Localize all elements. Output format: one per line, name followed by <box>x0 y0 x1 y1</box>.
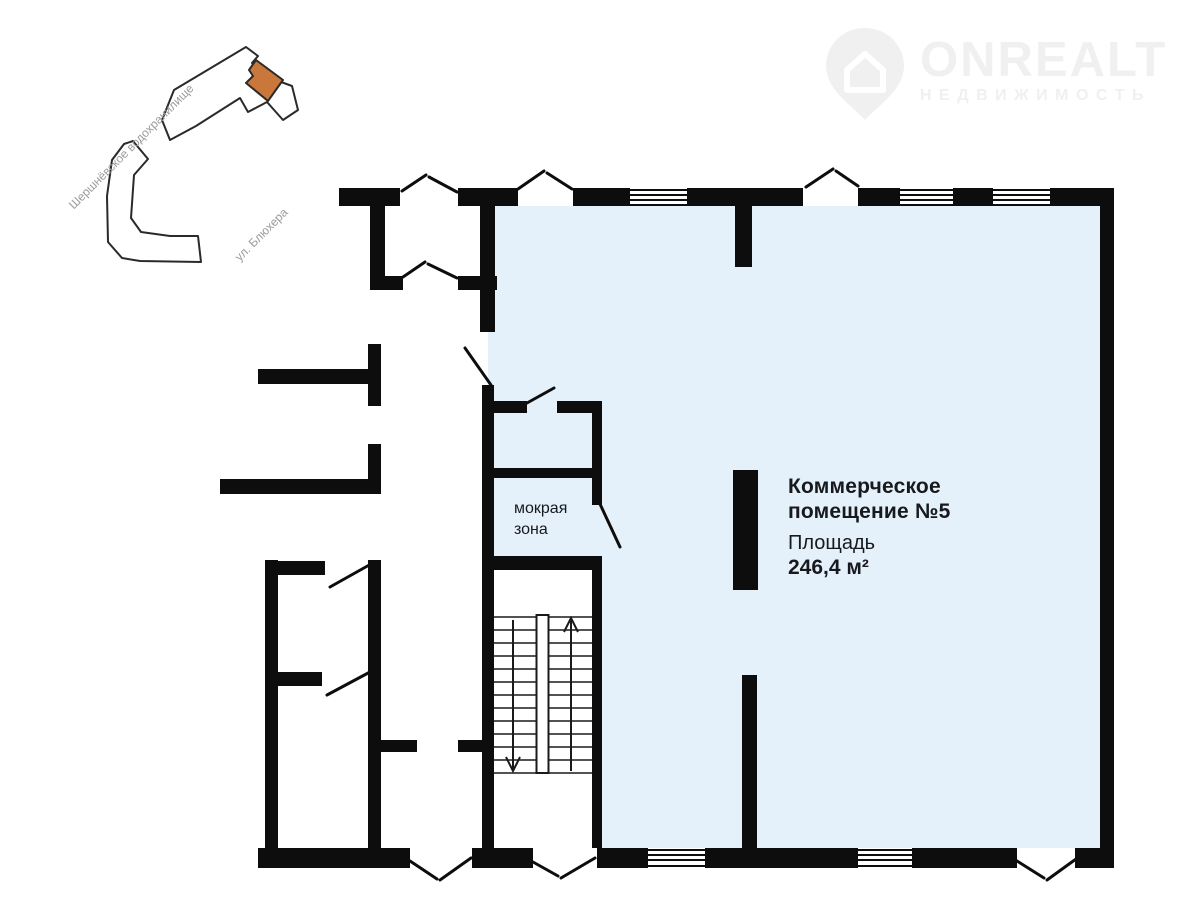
area-value: 246,4 м² <box>788 555 875 580</box>
area-label: Площадь <box>788 531 875 555</box>
logo-brand: ONREALT <box>920 34 1167 86</box>
unit-title: Коммерческое помещение №5 <box>788 474 950 524</box>
logo-subtitle: НЕДВИЖИМОСТЬ <box>920 86 1167 106</box>
unit-area-info: Площадь 246,4 м² <box>788 531 875 580</box>
wet-zone-line1: мокрая <box>514 498 567 519</box>
wet-zone-line2: зона <box>514 519 567 540</box>
unit-title-line2: помещение №5 <box>788 499 950 524</box>
staircase <box>494 615 592 773</box>
brand-watermark: ONREALT НЕДВИЖИМОСТЬ <box>822 26 1192 126</box>
stair-divider <box>537 615 549 773</box>
logo-text: ONREALT НЕДВИЖИМОСТЬ <box>920 34 1167 106</box>
commercial-unit-area <box>488 206 1102 848</box>
logo-pin-icon <box>822 26 908 122</box>
unit-title-line1: Коммерческое <box>788 474 950 499</box>
floor-plan-canvas <box>0 0 1200 910</box>
wet-zone-label: мокрая зона <box>514 498 567 540</box>
